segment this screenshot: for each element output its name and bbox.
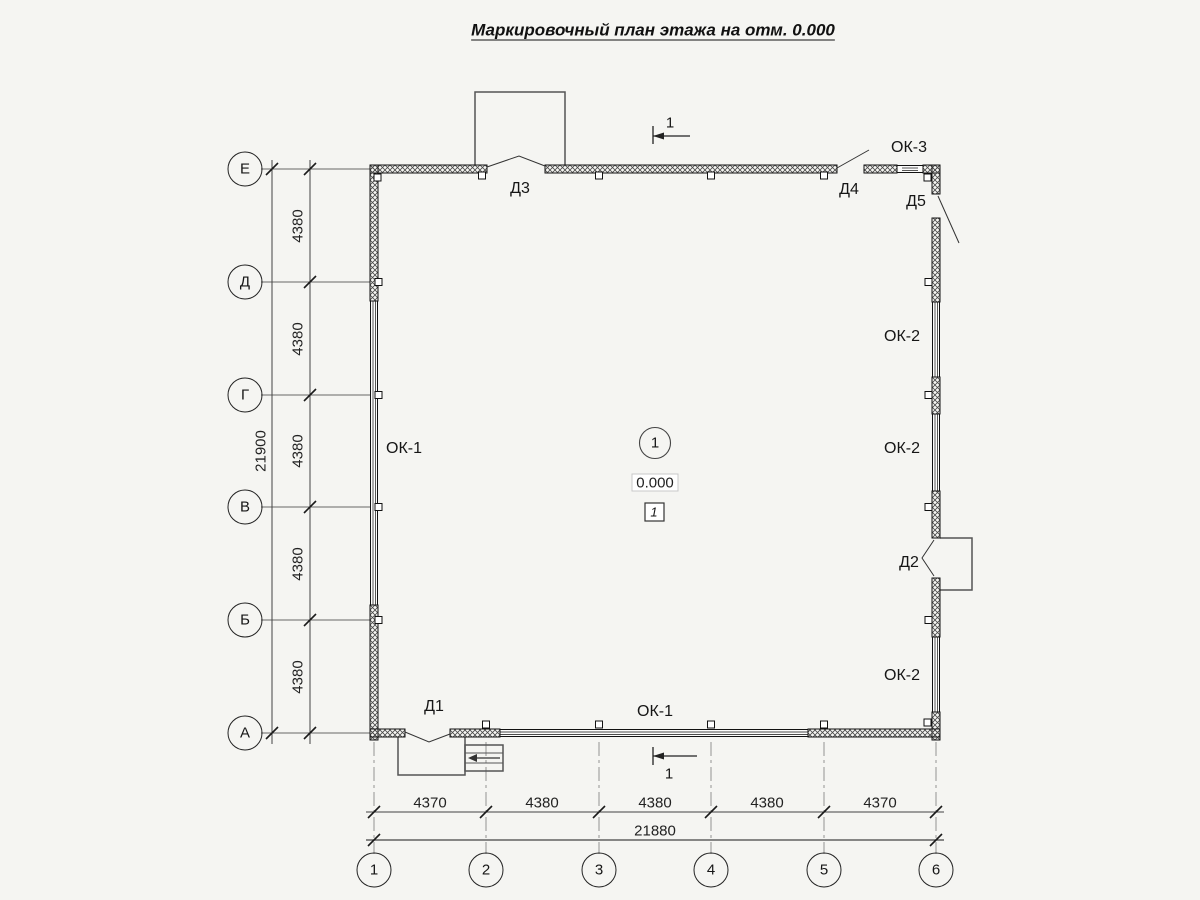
dim-left-5: 4380 — [291, 660, 306, 693]
axis-label-b: Б — [240, 612, 250, 629]
door-label-d1: Д1 — [424, 699, 444, 715]
axis-lines-left — [261, 169, 370, 733]
dim-left-2: 4380 — [291, 322, 306, 355]
section-mark-bottom — [653, 747, 697, 765]
dim-bottom-4: 4380 — [750, 796, 783, 811]
window-label-ok2-upper: ОК-2 — [884, 329, 920, 345]
walls-hatched — [370, 165, 940, 740]
axis-label-a: А — [240, 725, 250, 742]
window-label-ok2-lower: ОК-2 — [884, 668, 920, 684]
axis-label-6: 6 — [932, 862, 940, 879]
axis-bubble-col-6: 6 — [919, 853, 954, 888]
axis-label-3: 3 — [595, 862, 603, 879]
axis-label-2: 2 — [482, 862, 490, 879]
axis-bubble-col-5: 5 — [807, 853, 842, 888]
room-type-tag: 1 — [650, 506, 657, 519]
floor-plan-drawing — [0, 0, 1200, 900]
door-label-d5: Д5 — [906, 194, 926, 210]
door-label-d4: Д4 — [839, 182, 859, 198]
window-label-ok3: ОК-3 — [891, 140, 927, 156]
dim-bottom-3: 4380 — [638, 796, 671, 811]
axis-label-1: 1 — [370, 862, 378, 879]
drawing-title: Маркировочный план этажа на отм. 0.000 — [471, 22, 835, 39]
dim-bottom-1: 4370 — [413, 796, 446, 811]
room-number: 1 — [651, 436, 659, 451]
axis-bubble-row-b: Б — [228, 603, 263, 638]
axis-bubble-row-a: А — [228, 716, 263, 751]
door-label-d3: Д3 — [510, 181, 530, 197]
dim-left-1: 4380 — [291, 209, 306, 242]
dim-bottom-5: 4370 — [863, 796, 896, 811]
section-number-top: 1 — [666, 116, 674, 131]
stairs-direction-arrow — [468, 754, 500, 762]
axis-bubble-col-1: 1 — [357, 853, 392, 888]
door-label-d2: Д2 — [899, 555, 919, 571]
dim-bottom-total: 21880 — [634, 824, 676, 839]
axis-label-e: Е — [240, 161, 250, 178]
axis-bubble-col-2: 2 — [469, 853, 504, 888]
axis-bubble-row-g: Г — [228, 378, 263, 413]
floor-plan-sheet: Маркировочный план этажа на отм. 0.000 Е… — [0, 0, 1200, 900]
dim-left-3: 4380 — [291, 434, 306, 467]
axis-label-g: Г — [241, 387, 249, 404]
axis-bubble-row-d: Д — [228, 265, 263, 300]
dim-left-total: 21900 — [254, 430, 269, 472]
window-label-ok1-bottom: ОК-1 — [637, 704, 673, 720]
dim-bottom-2: 4380 — [525, 796, 558, 811]
dim-left-4: 4380 — [291, 547, 306, 580]
window-label-ok2-middle: ОК-2 — [884, 441, 920, 457]
axis-label-d: Д — [240, 274, 250, 291]
elevation-mark: 0.000 — [636, 475, 674, 490]
axis-bubble-col-3: 3 — [582, 853, 617, 888]
axis-bubble-row-v: В — [228, 490, 263, 525]
section-number-bottom: 1 — [665, 767, 673, 782]
door-swing-lines — [405, 150, 959, 742]
axis-label-4: 4 — [707, 862, 715, 879]
axis-label-5: 5 — [820, 862, 828, 879]
axis-bubble-row-e: Е — [228, 152, 263, 187]
window-label-ok1-left: ОК-1 — [386, 441, 422, 457]
axis-label-v: В — [240, 499, 250, 516]
axis-bubble-col-4: 4 — [694, 853, 729, 888]
